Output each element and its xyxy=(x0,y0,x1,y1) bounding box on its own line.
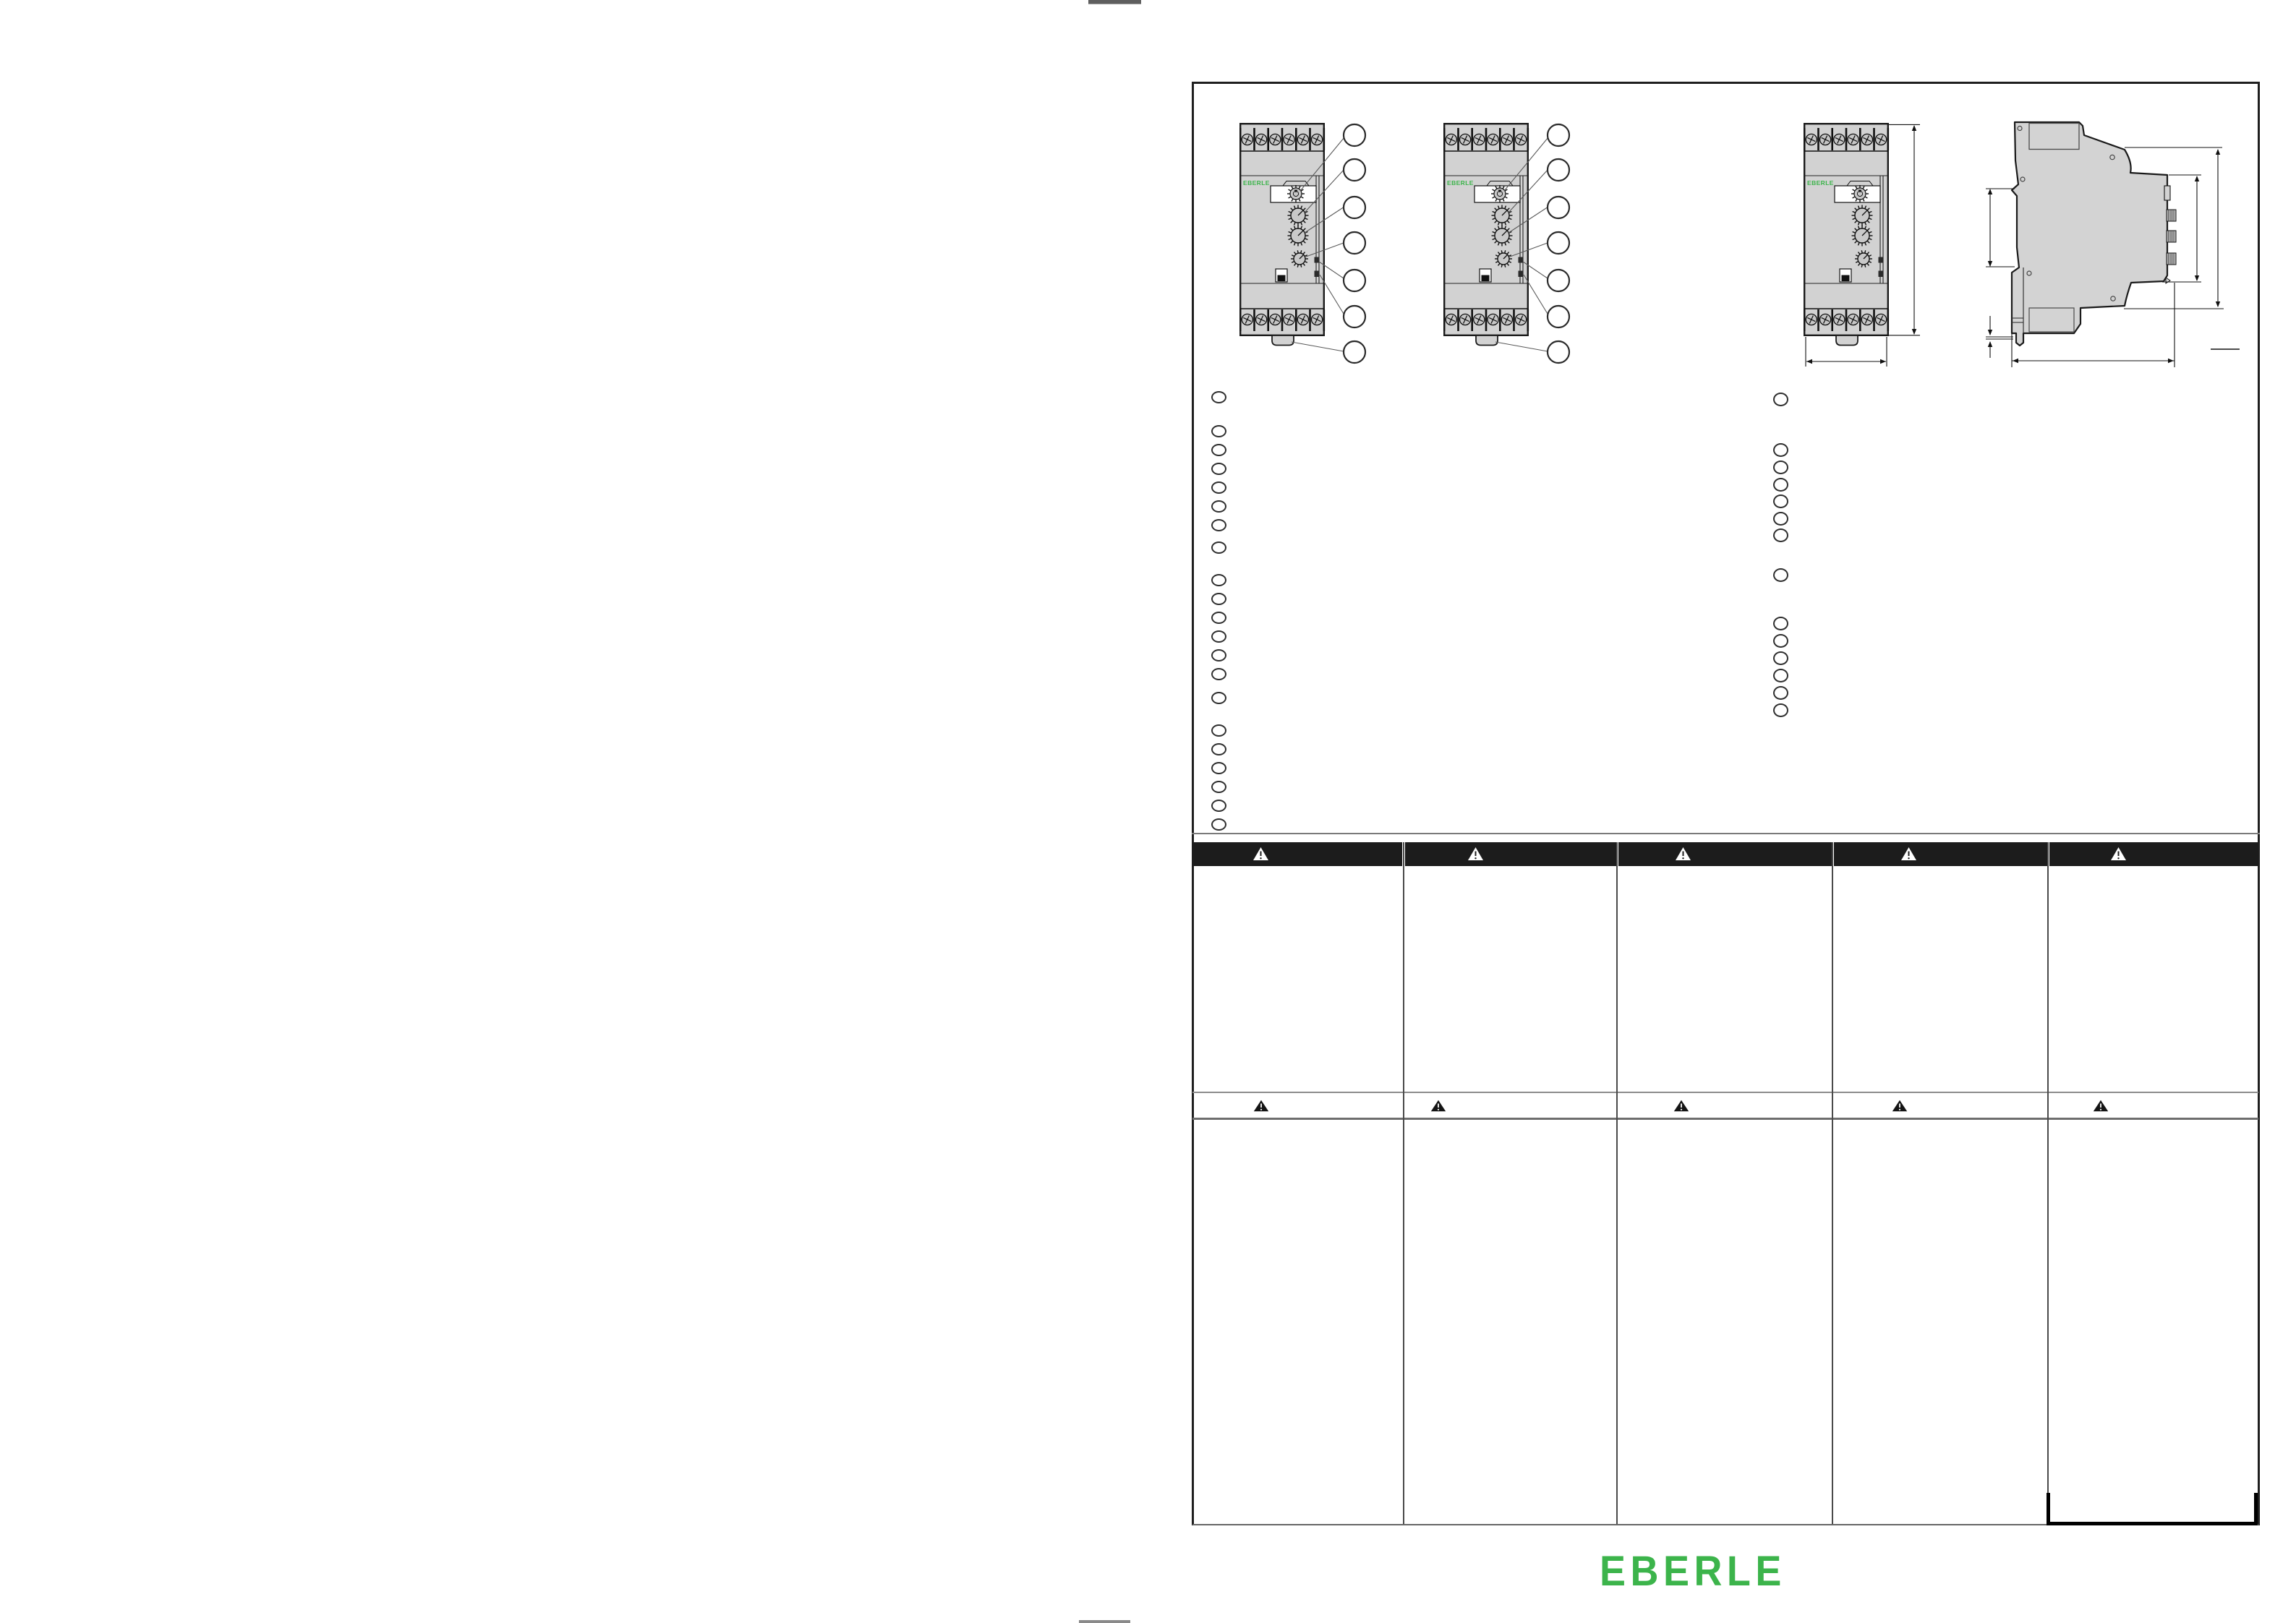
legend-bullet xyxy=(1211,743,1226,755)
warning-triangle-icon xyxy=(1252,847,1269,861)
legend-bullet xyxy=(1773,617,1788,630)
potentiometer-knob-icon xyxy=(1492,205,1513,226)
legend-bullet xyxy=(1773,528,1788,542)
led-indicator-icon xyxy=(1315,271,1320,278)
legend-bullet xyxy=(1773,443,1788,457)
slide-switch-icon xyxy=(1840,269,1851,282)
legend-bullet xyxy=(1773,393,1788,406)
legend-bullet xyxy=(1211,649,1226,661)
led-indicator-icon xyxy=(1879,271,1884,278)
warning-row-cell xyxy=(1673,1100,1689,1115)
potentiometer-knob-icon xyxy=(1288,226,1309,247)
legend-bullet xyxy=(1211,463,1226,475)
callout-leader-line xyxy=(1292,342,1344,351)
warning-triangle-black-icon xyxy=(1430,1100,1446,1112)
callout-circle xyxy=(1344,124,1365,146)
legend-bullet xyxy=(1773,478,1788,492)
page-top-marker xyxy=(1088,0,1141,4)
legend-bullet xyxy=(1211,800,1226,812)
callout-circle xyxy=(1548,306,1569,327)
warning-row-cell xyxy=(1892,1100,1908,1115)
warning-header-bar xyxy=(2049,842,2258,866)
slide-switch-icon xyxy=(1276,269,1287,282)
warning-header-bar xyxy=(1405,842,1617,866)
legend-bullet xyxy=(1211,724,1226,737)
potentiometer-knob-icon xyxy=(1288,205,1309,226)
legend-bullet xyxy=(1773,568,1788,582)
warning-row-cell xyxy=(2093,1100,2109,1115)
potentiometer-knob-icon xyxy=(1852,226,1873,247)
legend-bullet xyxy=(1773,703,1788,717)
legend-bullet xyxy=(1211,481,1226,494)
warning-row-cell xyxy=(1430,1100,1446,1115)
din-clip-tab xyxy=(1836,335,1858,346)
callout-circle xyxy=(1344,232,1365,254)
legend-bullet xyxy=(1211,391,1226,403)
terminal-screw-side-icon xyxy=(2167,231,2176,242)
din-clip-tab xyxy=(1476,335,1498,346)
device-eberle-label: EBERLE xyxy=(1243,179,1270,187)
callout-circle xyxy=(1548,270,1569,291)
warning-header-bar xyxy=(1618,842,1832,866)
legend-bullet xyxy=(1211,668,1226,680)
legend-bullet xyxy=(1211,630,1226,643)
legend-bullet xyxy=(1773,512,1788,526)
din-clip-tab xyxy=(1272,335,1294,346)
legend-bullet xyxy=(1211,612,1226,624)
potentiometer-knob-icon xyxy=(1492,226,1513,247)
callout-circle xyxy=(1344,341,1365,363)
table-rule xyxy=(1192,1092,2258,1093)
terminal-screw-side-icon xyxy=(2167,253,2176,265)
pre-table-rule xyxy=(1192,833,2260,834)
warning-triangle-icon xyxy=(2110,847,2127,861)
table-divider xyxy=(2047,842,2049,1525)
eberle-logo: EBERLE xyxy=(1600,1547,1822,1592)
page-bottom-marker xyxy=(1079,1620,1130,1623)
warning-header-bar xyxy=(1834,842,2048,866)
legend-bullet xyxy=(1211,425,1226,437)
document-page: EBERLE EBERLE EBERLE EBERLE xyxy=(0,0,2296,1623)
device-eberle-label: EBERLE xyxy=(1807,179,1834,187)
content-frame-top-border xyxy=(1192,82,2260,84)
device-side-view xyxy=(1981,119,2296,372)
legend-bullet xyxy=(1773,651,1788,665)
device-front-view-1: EBERLE xyxy=(1239,123,1406,376)
callout-circle xyxy=(1548,124,1569,146)
device-front-view-2: EBERLE xyxy=(1443,123,1610,376)
warning-triangle-black-icon xyxy=(1892,1100,1908,1112)
legend-bullet xyxy=(1211,762,1226,774)
side-profile xyxy=(2012,122,2167,346)
legend-bullet xyxy=(1211,519,1226,531)
legend-bullet xyxy=(1773,669,1788,682)
led-indicator-icon xyxy=(1879,257,1884,263)
legend-bullet xyxy=(1211,818,1226,831)
callout-leader-line xyxy=(1495,342,1548,351)
callout-circle xyxy=(1548,197,1569,218)
warning-row-cell xyxy=(1253,1100,1269,1115)
legend-bullet xyxy=(1211,444,1226,456)
warning-header-bar xyxy=(1192,842,1402,866)
callout-circle xyxy=(1344,197,1365,218)
legend-bullet xyxy=(1211,593,1226,605)
legend-bullet xyxy=(1773,461,1788,474)
callout-circle xyxy=(1548,159,1569,181)
table-divider xyxy=(1403,842,1404,1525)
led-indicator-icon xyxy=(1519,271,1524,278)
table-divider xyxy=(1616,842,1618,1525)
warning-triangle-black-icon xyxy=(1253,1100,1269,1112)
legend-bullet xyxy=(1211,781,1226,793)
led-indicator-icon xyxy=(1315,257,1320,263)
callout-circle xyxy=(1344,306,1365,327)
warning-triangle-icon xyxy=(1675,847,1691,861)
warning-table xyxy=(1192,842,2258,1528)
table-rule xyxy=(1192,1118,2258,1120)
slide-switch-icon xyxy=(1480,269,1491,282)
legend-bullet xyxy=(1211,541,1226,554)
potentiometer-knob-icon xyxy=(1852,205,1873,226)
legend-bullet xyxy=(1211,692,1226,704)
warning-triangle-icon xyxy=(1900,847,1917,861)
table-divider xyxy=(1832,842,1833,1525)
highlighted-cell-border xyxy=(2047,1493,2258,1525)
warning-triangle-black-icon xyxy=(2093,1100,2109,1112)
legend-bullet xyxy=(1211,500,1226,513)
device-eberle-label: EBERLE xyxy=(1447,179,1474,187)
legend-bullet xyxy=(1773,686,1788,700)
terminal-screw-side-icon xyxy=(2167,210,2176,221)
callout-circle xyxy=(1344,270,1365,291)
legend-bullet xyxy=(1211,574,1226,586)
legend-bullet xyxy=(1773,494,1788,508)
callout-circle xyxy=(1548,341,1569,363)
warning-triangle-black-icon xyxy=(1673,1100,1689,1112)
callout-circle xyxy=(1548,232,1569,254)
callout-circle xyxy=(1344,159,1365,181)
legend-bullet xyxy=(1773,634,1788,648)
led-indicator-icon xyxy=(1519,257,1524,263)
device-front-view-dimensioned: EBERLE xyxy=(1804,123,1923,376)
warning-triangle-icon xyxy=(1467,847,1484,861)
